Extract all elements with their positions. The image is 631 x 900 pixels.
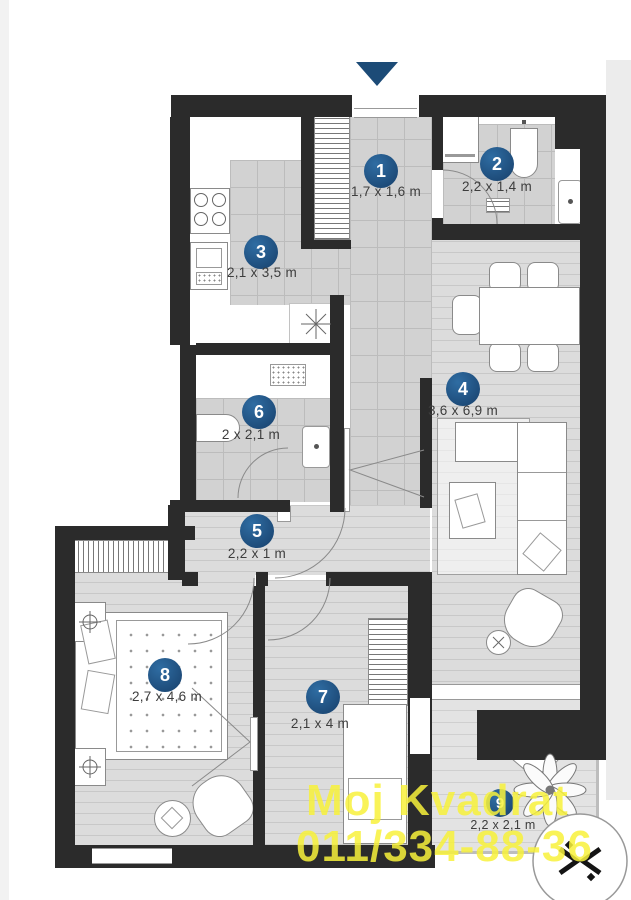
dining-table (479, 287, 580, 345)
room-badge-3: 3 (244, 235, 278, 269)
sofa-cushion-line (518, 520, 566, 521)
room-badge-7: 7 (306, 680, 340, 714)
wall-wing-left (55, 526, 75, 868)
wall-wardrobe-left (301, 115, 314, 248)
wall-terrace-block (477, 710, 606, 760)
room-badge-2: 2 (480, 147, 514, 181)
right-edge-band (606, 60, 631, 800)
tv-bedroom1 (250, 717, 258, 771)
entrance-arrow-icon (356, 62, 398, 86)
sofa-cushion-line (518, 472, 566, 473)
toilet-button (522, 120, 526, 124)
entrance-door-frame (354, 108, 417, 118)
wall-left-mid (180, 345, 196, 505)
wall-right (580, 117, 606, 690)
wall-corridor-right (420, 378, 432, 508)
wall-left-hallway (168, 505, 185, 580)
toilet-bowl (510, 128, 538, 178)
room-number: 1 (376, 161, 386, 182)
room-dims-4: 3,6 x 6,9 m (428, 403, 498, 418)
wall-wardrobe-bottom (301, 240, 351, 249)
stove-burner-icon (212, 193, 226, 207)
room-badge-5: 5 (240, 514, 274, 548)
room-dims-3: 2,1 x 3,5 m (227, 265, 297, 280)
bedroom1-wardrobe (72, 540, 178, 573)
room-badge-8: 8 (148, 658, 182, 692)
shower-mat (270, 364, 306, 386)
left-edge-band (0, 0, 9, 900)
tv-living (344, 428, 350, 512)
toilet-door-gap (432, 170, 443, 218)
room-dims-6: 2 x 2,1 m (222, 427, 280, 442)
room-badge-4: 4 (446, 372, 480, 406)
glass-wall (432, 684, 580, 700)
terrace-door-gap (410, 698, 430, 754)
kitchen-sink-basin (196, 248, 222, 268)
room-dims-2: 2,2 x 1,4 m (462, 179, 532, 194)
wall-wing-top (55, 526, 195, 540)
radiator (486, 198, 510, 213)
dining-chair (452, 295, 482, 335)
hall-wardrobe (314, 115, 350, 240)
side-table-round (486, 630, 511, 655)
washbasin-2-drain (314, 444, 319, 449)
watermark-line-2: 011/334-88-36 (296, 822, 593, 872)
nightstand (74, 748, 106, 786)
floor-plan: 1 1,7 x 1,6 m 2 2,2 x 1,4 m 3 2,1 x 3,5 … (0, 0, 631, 900)
stove-burner-icon (194, 212, 208, 226)
shower-area (196, 353, 330, 398)
room-dims-1: 1,7 x 1,6 m (351, 184, 421, 199)
room-number: 2 (492, 154, 502, 175)
washbasin-drain (568, 199, 573, 204)
room-number: 8 (160, 665, 170, 686)
wall-hallway-bottom-a (182, 572, 198, 586)
room-number: 6 (254, 402, 264, 423)
wall-top-left (171, 95, 352, 117)
wall-toilet-left-a (432, 117, 443, 170)
wall-bathroom-top (196, 343, 330, 355)
wall-niche-top (555, 117, 580, 149)
room-number: 7 (318, 687, 328, 708)
wall-bedrooms-divider (253, 586, 265, 845)
washing-machine-detail (445, 154, 475, 157)
room-dims-8: 2,7 x 4,6 m (132, 689, 202, 704)
dining-chair (527, 342, 559, 372)
room-badge-1: 1 (364, 154, 398, 188)
window-bedroom1 (92, 848, 172, 864)
bedroom2-wardrobe (368, 618, 408, 706)
room-dims-7: 2,1 x 4 m (291, 716, 349, 731)
room-dims-5: 2,2 x 1 m (228, 546, 286, 561)
room-number: 3 (256, 242, 266, 263)
wall-top-right (419, 95, 606, 117)
wall-left-upper (170, 117, 190, 345)
wall-bathroom-bottom (170, 500, 290, 512)
wall-toilet-bottom (432, 224, 606, 240)
room-number: 5 (252, 521, 262, 542)
stove-burner-icon (212, 212, 226, 226)
dining-chair (489, 342, 521, 372)
room-number: 4 (458, 379, 468, 400)
wall-right-terrace-corner (580, 683, 606, 713)
room-badge-6: 6 (242, 395, 276, 429)
stove-burner-icon (194, 193, 208, 207)
wall-hallway-bottom-c (326, 572, 432, 586)
kitchen-sink-drainer (196, 272, 222, 285)
watermark-line-1: Moj Kvadrat (306, 776, 569, 826)
wall-mid-divider (330, 295, 344, 512)
wall-hallway-bottom-b (256, 572, 268, 586)
